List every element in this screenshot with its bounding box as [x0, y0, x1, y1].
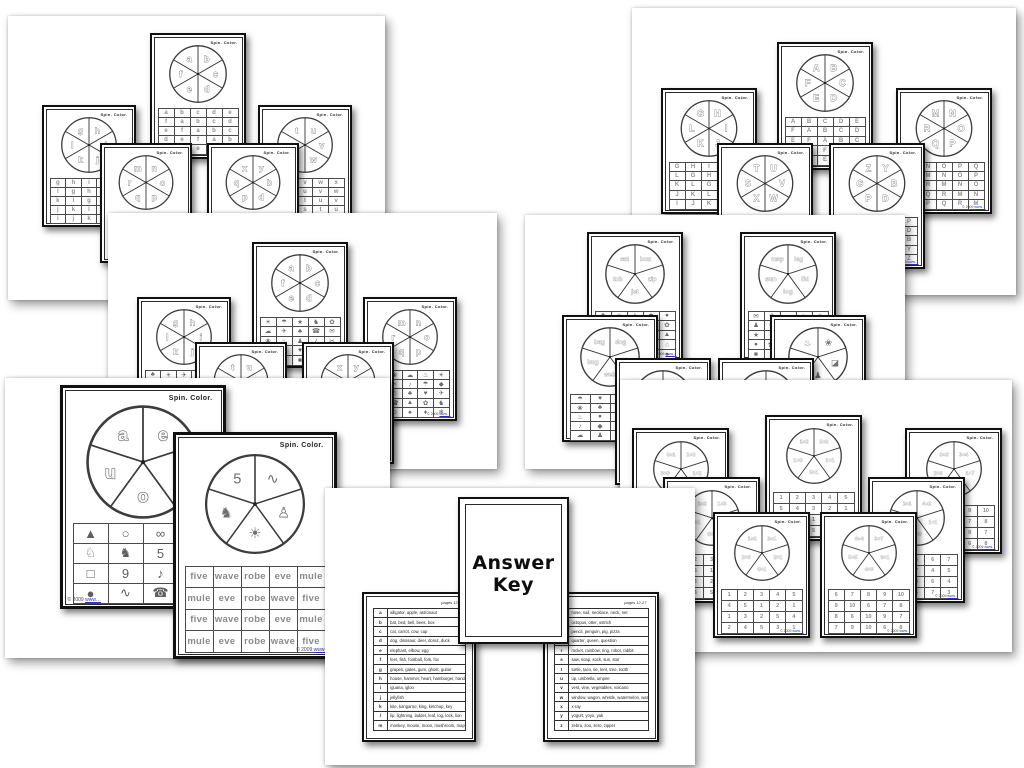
letter-cell: g [82, 197, 98, 206]
letter-cell: t [298, 197, 314, 206]
svg-text:sun: sun [765, 276, 776, 283]
answer-key-letter: l [374, 712, 389, 720]
answer-key-letter: m [374, 721, 389, 729]
letter-cell: e [159, 127, 175, 136]
copyright-link: www… [984, 545, 995, 549]
svg-text:T: T [754, 163, 760, 173]
answer-key-letter: y [555, 712, 570, 720]
copyright-link: www… [439, 412, 450, 416]
letter-cell: e [223, 109, 239, 118]
picture-cell: ♥ [418, 389, 434, 398]
spinner-wheel: 5∿♙☀♞ [203, 452, 307, 556]
letter-cell: N [969, 191, 985, 200]
number-cell: 2 [790, 493, 806, 504]
copyright-footer: © 2009 www… [68, 597, 101, 603]
svg-text:q: q [234, 177, 239, 187]
letter-cell: F [786, 127, 802, 137]
answer-key-row: aalligator, apple, astronaut [374, 609, 465, 618]
letter-cell: u [313, 197, 329, 206]
number-cell: 7 [845, 590, 861, 601]
svg-text:♞: ♞ [220, 505, 233, 521]
letter-cell: u [298, 188, 314, 197]
spinner-area: ABCDEF [795, 53, 855, 113]
svg-text:0+1: 0+1 [666, 452, 675, 458]
answer-key-words: elephant, elbow, egg [388, 646, 464, 654]
picture-cell: ☁ [403, 371, 419, 380]
picture-cell: ✉ [749, 312, 765, 322]
svg-text:b: b [306, 262, 312, 272]
number-cell: 8 [893, 601, 909, 612]
picture-cell: ♞ [109, 544, 144, 564]
letter-cell: d [223, 118, 239, 127]
svg-text:☀: ☀ [248, 526, 261, 542]
letter-cell: H [702, 172, 718, 181]
picture-cell: ♟ [591, 431, 611, 440]
picture-cell: ♣ [403, 389, 419, 398]
svg-text:1+0: 1+0 [747, 536, 756, 542]
answer-key-words: grapes, gates, gum, ghost, guitar [388, 665, 464, 673]
answer-key-letter: z [555, 721, 570, 729]
copyright-text: © 2009 [962, 205, 974, 209]
picture-cell: ✿ [418, 399, 434, 408]
picture-cell: ❀ [571, 404, 591, 413]
svg-text:1+2: 1+2 [692, 471, 701, 477]
letter-cell: w [329, 188, 345, 197]
picture-cell: ♥ [591, 395, 611, 404]
svg-text:❀: ❀ [825, 337, 833, 347]
letter-cell: A [786, 118, 802, 128]
picture-cell: ♟ [749, 321, 765, 331]
word-cell: eve [214, 631, 242, 653]
svg-text:♙: ♙ [277, 505, 290, 521]
svg-text:B: B [891, 178, 897, 188]
letter-cell: j [51, 206, 67, 215]
letter-cell: k [51, 197, 67, 206]
answer-key-words: x-ray [569, 702, 647, 710]
svg-text:b: b [267, 177, 272, 187]
word-cell: mule [298, 567, 326, 589]
letter-cell: K [702, 200, 718, 209]
svg-text:tub: tub [613, 276, 623, 283]
answer-key-words: dog, dinosaur, deer, donut, duck [388, 637, 464, 645]
answer-key-words: saw, soap, sock, sun, star [569, 655, 647, 663]
letter-cell: M [937, 181, 953, 190]
svg-text:k: k [173, 346, 178, 356]
svg-text:q: q [399, 346, 404, 356]
letter-cell: M [953, 191, 969, 200]
svg-text:lid: lid [802, 276, 809, 283]
answer-key-row: yyogurt, yoyo, yak [555, 712, 648, 721]
letter-cell: E [850, 118, 866, 128]
answer-key-letter: r [555, 646, 570, 654]
letter-cell: N [953, 181, 969, 190]
picture-cell: ☃ [660, 340, 676, 350]
copyright-link: www… [665, 352, 676, 356]
worksheet-page: Spin. Color.6+43+79+14+65+56789109106788… [820, 512, 917, 638]
copyright-text: © 2009 [780, 629, 792, 633]
word-cell: mule [186, 631, 214, 653]
number-cell: 5 [770, 612, 786, 623]
svg-text:o: o [424, 332, 429, 342]
number-cell: 4 [822, 493, 838, 504]
number-cell: 5 [941, 566, 957, 577]
answer-key-letter: i [374, 684, 389, 692]
letter-cell: N [937, 172, 953, 181]
spinner-area: xybdpq [225, 154, 282, 211]
svg-text:x: x [337, 362, 342, 372]
answer-key-words: vest, vine, vegetables, volcano [569, 684, 647, 692]
answer-key-letter: c [374, 627, 389, 635]
letter-cell: K [686, 191, 702, 200]
letter-cell: f [175, 127, 191, 136]
letter-cell: v [329, 197, 345, 206]
svg-text:o: o [138, 486, 149, 506]
picture-cell: ☎ [309, 327, 325, 337]
svg-text:M: M [932, 108, 939, 118]
word-cell: wave [214, 610, 242, 632]
letter-cell: b [175, 109, 191, 118]
spinner-wheel: abcdef [270, 253, 330, 313]
spinner-wheel: mapleglidlogsun [757, 243, 819, 305]
answer-key-words: lip, lightning, ladder, leaf, log, lock,… [388, 712, 464, 720]
answer-key-words: house, hammer, heart, hamburger, hand [388, 674, 464, 682]
number-grid: 12345451211325424531 [721, 589, 803, 634]
number-cell: 9 [829, 601, 845, 612]
copyright-text: © 2009 [972, 545, 984, 549]
answer-key-row: bbat, bed, bell, bees, box [374, 618, 465, 627]
word-cell: five [298, 588, 326, 610]
svg-text:P: P [865, 193, 871, 203]
svg-text:U: U [770, 163, 776, 173]
letter-cell: Q [937, 200, 953, 209]
number-cell: 4 [738, 623, 754, 634]
word-cell: five [186, 567, 214, 589]
answer-key-letter: f [374, 655, 389, 663]
answer-key-words: nose, nail, necklace, neck, net [569, 609, 647, 617]
answer-key-words: octopus, otter, ostrich [569, 618, 647, 626]
svg-text:map: map [771, 255, 784, 262]
word-cell: wave [270, 631, 298, 653]
number-cell: 4 [770, 590, 786, 601]
svg-text:O: O [958, 123, 965, 133]
picture-cell: ☁ [571, 431, 591, 440]
number-cell: 1 [786, 601, 802, 612]
picture-cell: ☂ [571, 395, 591, 404]
number-cell: 10 [861, 623, 877, 634]
number-cell: 8 [861, 590, 877, 601]
number-cell: 5 [838, 493, 854, 504]
picture-cell: ◆ [591, 422, 611, 431]
svg-text:log: log [783, 288, 792, 295]
number-cell: 9 [845, 623, 861, 634]
answer-key-letter: k [374, 702, 389, 710]
letter-cell: K [670, 181, 686, 190]
svg-text:1+1: 1+1 [928, 520, 937, 526]
worksheet-page-inner: Spin. Color.5∿♙☀♞fivewaverobeevemulemule… [178, 437, 333, 655]
letter-cell: b [207, 127, 223, 136]
picture-cell: ✿ [660, 321, 676, 331]
letter-cell: c [223, 127, 239, 136]
answer-key-row: xx-ray [555, 702, 648, 711]
svg-text:4+6: 4+6 [864, 566, 873, 572]
letter-cell: v [313, 188, 329, 197]
answer-key-letter: a [374, 609, 389, 617]
picture-cell: ☂ [277, 318, 293, 328]
svg-text:Z: Z [866, 163, 872, 173]
picture-cell: ✿ [325, 318, 341, 328]
letter-cell: a [159, 109, 175, 118]
svg-text:R: R [924, 123, 931, 133]
picture-cell: ✈ [277, 327, 293, 337]
letter-cell: B [818, 127, 834, 137]
svg-text:t: t [231, 362, 234, 372]
worksheet-page: Answer Key [458, 497, 569, 644]
answer-key-letter: w [555, 693, 570, 701]
copyright-link: www… [899, 629, 910, 633]
answer-key-words: window, wagon, whistle, watermelon, watc… [569, 693, 647, 701]
worksheet-page-inner: pages 12-27aalligator, apple, astronautb… [366, 596, 473, 739]
number-cell: 3 [738, 612, 754, 623]
letter-cell: c [207, 118, 223, 127]
letter-cell: I [670, 200, 686, 209]
number-cell: 9 [877, 612, 893, 623]
svg-text:j: j [190, 346, 193, 356]
answer-key-words: quarter, queen, question [569, 637, 647, 645]
copyright-link: www… [792, 629, 803, 633]
picture-cell: ☀ [434, 371, 450, 380]
svg-text:t: t [295, 125, 298, 135]
svg-text:2+3: 2+3 [933, 471, 942, 477]
svg-text:1+1: 1+1 [825, 458, 834, 464]
word-cell: robe [242, 588, 270, 610]
answer-key-row: rrocket, rainbow, ring, robot, rabbit [555, 646, 648, 655]
letter-cell: J [670, 191, 686, 200]
svg-text:y: y [354, 362, 359, 372]
answer-key-row: llip, lightning, ladder, leaf, log, lock… [374, 712, 465, 721]
svg-text:5: 5 [233, 471, 241, 487]
spinner-area: TUVWXS [736, 154, 795, 213]
answer-key-letter: b [374, 618, 389, 626]
copyright-link: www… [974, 205, 985, 209]
svg-text:d: d [259, 191, 264, 201]
number-cell: 10 [978, 506, 994, 517]
number-cell: 4 [722, 601, 738, 612]
letter-cell: h [66, 179, 82, 188]
picture-cell: ☀ [261, 318, 277, 328]
picture-cell: ♞ [309, 318, 325, 328]
svg-text:d: d [204, 84, 210, 94]
letter-cell: g [66, 188, 82, 197]
svg-text:zip: zip [648, 276, 657, 283]
number-cell: 6 [861, 601, 877, 612]
answer-key-row: ffeet, fish, football, fork, fox [374, 655, 465, 664]
svg-text:a: a [118, 424, 128, 444]
answer-key-words: turtle, taco, tie, tent, tree, tooth [569, 665, 647, 673]
word-cell: wave [270, 588, 298, 610]
svg-text:W: W [769, 193, 778, 203]
worksheet-page-inner: Spin. Color.1+03+12+10+12+01234545121132… [717, 516, 807, 635]
svg-text:q: q [135, 191, 140, 201]
answer-key-row: kkite, kangaroo, king, ketchup, key [374, 702, 465, 711]
letter-cell: k [82, 215, 98, 224]
svg-text:3+7: 3+7 [874, 536, 883, 542]
number-cell: 10 [845, 601, 861, 612]
word-cell: robe [242, 610, 270, 632]
svg-text:3+0: 3+0 [660, 471, 669, 477]
svg-text:m: m [398, 317, 406, 327]
letter-cell: j [66, 215, 82, 224]
spinner-wheel: catboxzipjettub [604, 243, 666, 305]
svg-text:3+1: 3+1 [767, 536, 776, 542]
number-cell: 10 [893, 590, 909, 601]
copyright-text: © 2009 [887, 629, 899, 633]
number-cell: 7 [978, 528, 994, 539]
word-grid: fivewaverobeevemulemuleeverobewavefivefi… [185, 566, 326, 653]
number-cell: 7 [941, 555, 957, 566]
worksheet-page-inner: Spin. Color.abcdefabcdefabcdefabcdefabcd… [154, 37, 243, 156]
answer-key-letter: v [555, 684, 570, 692]
svg-text:jet: jet [630, 288, 638, 295]
svg-text:d: d [306, 293, 312, 303]
letter-cell: Q [969, 163, 985, 172]
picture-cell: □ [74, 564, 109, 584]
picture-cell: ♘ [74, 544, 109, 564]
svg-text:3+3: 3+3 [939, 452, 948, 458]
answer-key-words: yogurt, yoyo, yak [569, 712, 647, 720]
number-cell: 3 [806, 493, 822, 504]
letter-cell: k [66, 206, 82, 215]
letter-cell: c [191, 109, 207, 118]
svg-text:box: box [640, 255, 652, 262]
letter-cell: e [191, 145, 207, 154]
spinner-wheel: 1+03+12+10+12+0 [733, 524, 791, 582]
word-cell: eve [270, 567, 298, 589]
worksheet-page: Spin. Color.5∿♙☀♞fivewaverobeevemulemule… [173, 432, 337, 659]
number-cell: 6 [925, 555, 941, 566]
number-cell: 3 [754, 590, 770, 601]
spinner-wheel: ABCDEF [795, 53, 855, 113]
svg-text:Q: Q [932, 138, 939, 148]
svg-text:♟: ♟ [814, 369, 822, 379]
letter-cell: I [702, 163, 718, 172]
answer-key-letter: d [374, 637, 389, 645]
spinner-area: 1+03+12+10+12+0 [733, 524, 791, 582]
number-cell: 4 [941, 577, 957, 588]
copyright-footer: © 2009 www… [972, 545, 995, 549]
svg-text:N: N [949, 108, 955, 118]
picture-cell: ☂ [418, 380, 434, 389]
letter-cell: P [953, 163, 969, 172]
letter-cell: L [686, 181, 702, 190]
spinner-area: mapleglidlogsun [757, 243, 819, 305]
spinner-wheel: abcdef [168, 44, 228, 104]
number-cell: 9 [877, 590, 893, 601]
answer-key-row: ssaw, soap, sock, sun, star [555, 655, 648, 664]
svg-text:6+4: 6+4 [854, 536, 863, 542]
copyright-text: © 2009 [427, 412, 439, 416]
svg-text:3+4: 3+4 [959, 452, 968, 458]
svg-text:o: o [160, 177, 165, 187]
letter-cell: g [51, 179, 67, 188]
letter-cell: P [969, 172, 985, 181]
letter-cell: i [51, 215, 67, 224]
picture-cell: ♪ [571, 422, 591, 431]
svg-text:1+3: 1+3 [717, 501, 726, 507]
letter-cell: i [82, 179, 98, 188]
spinner-wheel: 1+22+21+10+11+0 [785, 427, 843, 485]
svg-text:e: e [289, 293, 294, 303]
spinner-area: 5∿♙☀♞ [203, 452, 307, 556]
svg-text:p: p [416, 346, 421, 356]
letter-cell: b [191, 118, 207, 127]
svg-text:p: p [242, 191, 247, 201]
picture-cell: ♣ [293, 327, 309, 337]
svg-text:1+7: 1+7 [965, 471, 974, 477]
svg-text:X: X [753, 193, 759, 203]
answer-key-table: aalligator, apple, astronautbbat, bed, b… [373, 608, 466, 731]
picture-cell: ○ [109, 524, 144, 544]
letter-cell: O [969, 181, 985, 190]
picture-cell: ★ [293, 318, 309, 328]
svg-text:A: A [813, 62, 820, 72]
svg-text:V: V [779, 178, 785, 188]
answer-key-letter: e [374, 646, 389, 654]
svg-text:2+0: 2+0 [741, 555, 750, 561]
answer-key-row: mmonkey, mouse, moon, mushroom, map [374, 721, 465, 729]
answer-key-letter: u [555, 674, 570, 682]
number-cell: 2 [738, 590, 754, 601]
word-cell: mule [186, 588, 214, 610]
answer-key-words: bat, bed, bell, bees, box [388, 618, 464, 626]
word-cell: robe [242, 567, 270, 589]
word-cell: wave [214, 567, 242, 589]
answer-key-row: jjellyfish [374, 693, 465, 702]
number-cell: 5 [754, 623, 770, 634]
number-cell: 10 [861, 612, 877, 623]
picture-cell: ▲ [403, 399, 419, 408]
answer-key-row: eelephant, elbow, egg [374, 646, 465, 655]
svg-text:h: h [95, 125, 100, 135]
number-cell: 7 [893, 612, 909, 623]
picture-cell: ∿ [109, 584, 144, 604]
svg-text:l: l [71, 140, 73, 150]
svg-text:w: w [309, 154, 317, 164]
letter-cell: a [175, 118, 191, 127]
svg-text:h: h [190, 317, 195, 327]
svg-text:cat: cat [620, 255, 629, 262]
copyright-footer: © 2009 www… [427, 412, 450, 416]
picture-cell: ♨ [418, 371, 434, 380]
spinner-area: 1+22+21+10+11+0 [785, 427, 843, 485]
svg-text:E: E [813, 93, 819, 103]
letter-cell: D [850, 127, 866, 137]
answer-key-row: vvest, vine, vegetables, volcano [555, 684, 648, 693]
letter-cell: H [686, 163, 702, 172]
picture-cell: ♠ [403, 408, 419, 417]
answer-key-words: iguana, igloo [388, 684, 464, 692]
svg-text:bug: bug [587, 359, 599, 366]
svg-text:0+1: 0+1 [757, 566, 766, 572]
picture-cell: ★ [749, 331, 765, 341]
letter-cell: O [937, 163, 953, 172]
svg-text:bag: bag [594, 338, 605, 345]
letter-cell: J [686, 200, 702, 209]
worksheet-page: Spin. Color.1+03+12+10+12+01234545121132… [713, 512, 810, 638]
answer-key-words: monkey, mouse, moon, mushroom, map [388, 721, 464, 729]
svg-text:m: m [134, 163, 142, 173]
number-cell: 8 [978, 517, 994, 528]
number-cell: 4 [786, 612, 802, 623]
